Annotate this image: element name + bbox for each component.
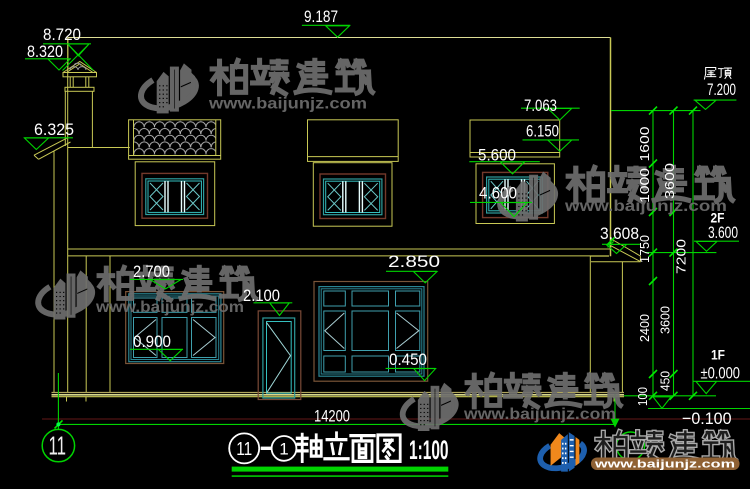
svg-text:www.baijunjz.com: www.baijunjz.com [463,406,616,423]
svg-text:1750: 1750 [638,235,652,263]
svg-text:14200: 14200 [314,407,350,426]
svg-text:8.320: 8.320 [27,42,63,61]
svg-text:−0.100: −0.100 [682,409,732,428]
svg-text:1F: 1F [711,347,725,363]
svg-text:7.063: 7.063 [524,96,557,115]
svg-text:11: 11 [236,439,252,459]
svg-text:7.200: 7.200 [707,80,736,99]
svg-text:www.baijunjz.com: www.baijunjz.com [95,299,244,316]
svg-text:2.100: 2.100 [243,286,280,305]
svg-text:1:100: 1:100 [409,435,449,465]
svg-text:2F: 2F [711,210,725,226]
svg-text:11: 11 [48,431,66,461]
svg-text:7200: 7200 [675,239,689,274]
svg-text:1000: 1000 [638,168,652,203]
svg-text:2.850: 2.850 [388,252,440,271]
svg-text:450: 450 [659,371,673,391]
svg-text:±0.000: ±0.000 [701,364,741,383]
svg-text:2400: 2400 [638,314,652,342]
svg-text:www.baijunjz.com: www.baijunjz.com [594,459,736,471]
svg-text:5.600: 5.600 [478,146,516,165]
svg-text:6.150: 6.150 [526,122,559,141]
svg-text:3600: 3600 [663,163,677,199]
svg-text:0.900: 0.900 [133,332,171,351]
svg-text:2.700: 2.700 [133,262,170,281]
svg-text:www.baijunjz.com: www.baijunjz.com [208,96,367,113]
svg-text:6.325: 6.325 [34,120,74,139]
svg-text:3.608: 3.608 [600,224,639,243]
svg-text:3.600: 3.600 [708,223,738,242]
svg-text:100: 100 [636,387,650,406]
svg-text:4.600: 4.600 [479,184,517,203]
svg-text:3600: 3600 [659,306,673,334]
svg-text:9.187: 9.187 [304,7,338,26]
svg-text:0.450: 0.450 [389,350,427,369]
svg-text:1600: 1600 [638,126,652,161]
svg-text:1: 1 [279,440,288,459]
